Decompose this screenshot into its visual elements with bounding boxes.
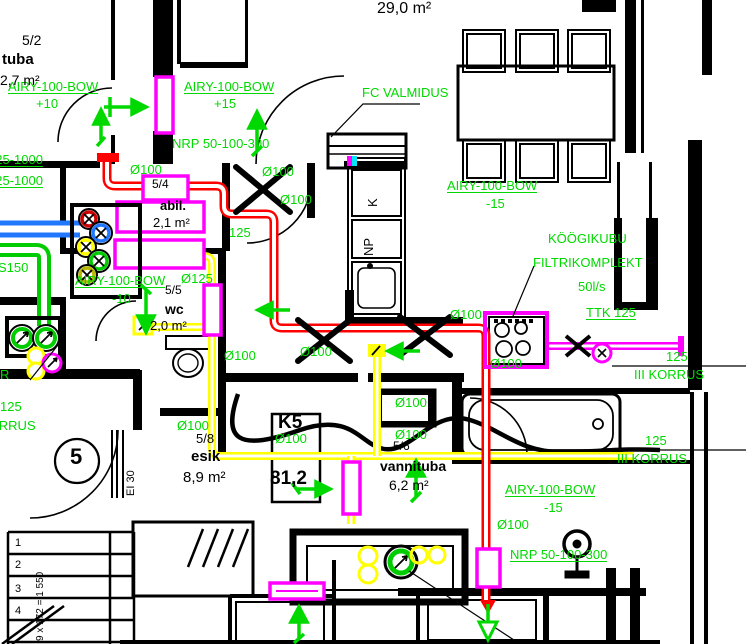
plan-label: Ø100 bbox=[224, 349, 256, 362]
plan-label: 5/6 bbox=[393, 440, 410, 452]
supply-valve bbox=[9, 325, 35, 351]
cyan-dot bbox=[352, 156, 357, 166]
plan-label: 9 x 172 = 1 550 bbox=[36, 572, 46, 641]
plan-label: Ø100 bbox=[275, 432, 307, 445]
plan-label: -15 bbox=[544, 501, 563, 514]
silencer bbox=[343, 462, 360, 514]
toilet bbox=[166, 336, 210, 377]
plan-label: tuba bbox=[2, 52, 34, 67]
plan-label: 125 bbox=[645, 434, 667, 447]
lower-furniture bbox=[236, 602, 324, 642]
plan-label: 81,2 bbox=[270, 469, 307, 488]
door-arc bbox=[96, 301, 136, 341]
plan-label: III KORRUS bbox=[617, 452, 687, 465]
lower-yellow-light bbox=[359, 547, 377, 565]
plan-label: 2,0 m² bbox=[150, 319, 187, 332]
flow-arrow-up bbox=[94, 110, 108, 146]
plan-label: 125-1000 bbox=[0, 153, 43, 167]
flow-arrow-right bbox=[104, 97, 146, 117]
plan-label: KÖÖGIKUBU bbox=[548, 232, 627, 245]
plan-label: K5 bbox=[278, 413, 302, 432]
plan-label: Ø100 bbox=[130, 163, 162, 176]
plan-label: wc bbox=[165, 302, 184, 316]
plan-label: -15 bbox=[486, 197, 505, 210]
hood-leader bbox=[513, 266, 534, 316]
dining-table bbox=[458, 66, 614, 140]
plan-label: III KORRUS bbox=[634, 368, 704, 381]
plan-label: NRP 50-100-300 bbox=[172, 137, 269, 150]
plan-label: 6,2 m² bbox=[389, 478, 429, 492]
plan-label: Ø125 bbox=[181, 272, 213, 285]
plan-label: FC VALMIDUS bbox=[362, 86, 448, 99]
plan-label: 125 bbox=[229, 226, 251, 239]
plan-label: R bbox=[0, 368, 9, 381]
plan-label: Ø100 bbox=[300, 345, 332, 358]
plan-label: TTK 125 bbox=[586, 306, 636, 320]
silencer bbox=[115, 240, 204, 268]
plan-label: 125 bbox=[0, 400, 22, 413]
plan-label: 2,1 m² bbox=[153, 216, 190, 229]
kitchen-counter bbox=[348, 158, 405, 323]
hatched-wardrobe bbox=[133, 522, 253, 596]
plan-label: 1 bbox=[15, 538, 21, 549]
plan-label: NRP 50-100-300 bbox=[510, 548, 607, 562]
plan-label: 2,7 m² bbox=[0, 73, 40, 87]
lower-yellow-light bbox=[359, 565, 377, 583]
plan-label: 2 bbox=[15, 560, 21, 571]
ventilation-floor-plan: AIRY-100-BOW+10AIRY-100-BOW+15FC VALMIDU… bbox=[0, 0, 746, 644]
chairs bbox=[463, 30, 610, 182]
plan-label: -10 bbox=[112, 292, 131, 305]
plan-label: Ø100 bbox=[280, 193, 312, 206]
plan-label: 29,0 m² bbox=[377, 1, 431, 17]
fire-door-ei30 bbox=[112, 430, 123, 498]
plan-label: Ø100 bbox=[262, 165, 294, 178]
plan-label: 5/5 bbox=[165, 284, 182, 296]
plan-label: +15 bbox=[214, 97, 236, 110]
magenta-hood-duct bbox=[545, 336, 684, 362]
plan-label: 3 bbox=[15, 584, 21, 595]
plan-label: AIRY-100-BOW bbox=[447, 179, 537, 193]
plan-label: 5/4 bbox=[152, 178, 169, 190]
plan-label: vannituba bbox=[380, 459, 446, 473]
door-arc bbox=[470, 398, 527, 455]
plan-label: 50l/s bbox=[578, 280, 605, 293]
flow-arrow-up bbox=[291, 607, 307, 643]
plan-label: AIRY-100-BOW bbox=[184, 80, 274, 94]
plan-label: 8,9 m² bbox=[183, 470, 226, 485]
plan-label: AIRY-100-BOW bbox=[505, 483, 595, 497]
plan-label: 125 bbox=[666, 350, 688, 363]
plan-label: EI 30 bbox=[126, 470, 137, 496]
silencer bbox=[477, 549, 500, 587]
lower-furniture bbox=[428, 600, 536, 640]
flow-arrow-down bbox=[479, 604, 497, 640]
fc-leader bbox=[331, 104, 420, 137]
plan-label: 5/8 bbox=[196, 432, 214, 445]
magenta-valve bbox=[43, 354, 61, 372]
lower-yellow-light bbox=[429, 547, 445, 563]
silencer bbox=[204, 285, 221, 335]
plan-label: 4 bbox=[15, 606, 21, 617]
magenta-dot bbox=[347, 156, 352, 166]
silencer bbox=[156, 77, 173, 133]
plan-label: NP bbox=[362, 238, 375, 256]
plan-label: 5 bbox=[70, 446, 82, 468]
plan-label: K bbox=[366, 198, 379, 207]
plan-label: Ø100 bbox=[497, 518, 529, 531]
plan-label: FILTRIKOMPLEKT bbox=[533, 256, 643, 269]
plan-label: S150 bbox=[0, 261, 28, 274]
plan-label: esik bbox=[191, 449, 220, 464]
plan-label: Ø100 bbox=[395, 396, 427, 409]
plan-label: KORRUS bbox=[0, 419, 36, 432]
plan-label: 125-1000 bbox=[0, 174, 43, 188]
stairs bbox=[2, 532, 134, 644]
plan-label: 5/2 bbox=[22, 33, 41, 47]
plan-label: +10 bbox=[36, 97, 58, 110]
plan-label: Ø100 bbox=[450, 308, 482, 321]
plan-label: abil. bbox=[160, 199, 186, 212]
plan-label: Ø100 bbox=[490, 357, 522, 370]
plan-label: AIRY-100-BOW bbox=[75, 274, 165, 288]
